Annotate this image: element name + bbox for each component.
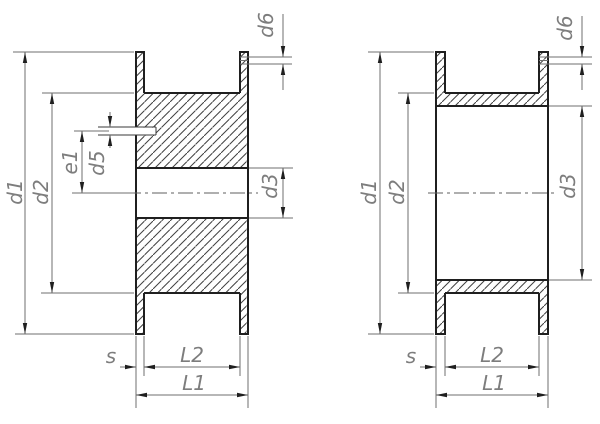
hatch-top-right-flange [240,52,248,93]
label-d6: d6 [254,12,278,37]
arrow-up [108,135,112,146]
arrow-up [378,52,382,63]
hatch-bottom-right-flange [539,293,548,334]
hatch-bottom-right-flange [240,293,248,334]
label-d3: d3 [556,173,580,198]
dimension-d5: d5 [85,112,112,176]
arrow-right [125,365,136,369]
label-d2: d2 [385,179,409,204]
dimension-d3-left: d3 [249,168,293,218]
label-s: s [406,344,416,368]
dimensions-bottom-left: s L2 L1 [106,336,248,408]
dimensions-bottom-right: s L2 L1 [406,336,548,408]
label-d2: d2 [29,179,53,204]
arrow-down [80,182,84,193]
label-d1: d1 [3,179,27,204]
hatch-lower-body [136,218,248,293]
label-L1: L1 [182,371,206,395]
hatch-bottom-left-flange [136,293,144,334]
left-pulley-view: d1 d2 e1 [3,12,293,408]
arrow-down [23,323,27,334]
arrow-right [537,393,548,397]
label-L2: L2 [180,343,204,367]
dimension-d3-right: d3 [549,106,592,280]
arrow-up [50,93,54,104]
label-d3: d3 [258,173,282,198]
arrow-left [136,393,147,397]
arrow-right [229,365,240,369]
arrow-down [281,46,285,57]
label-L1: L1 [482,371,506,395]
drawing-canvas: d1 d2 e1 [0,0,600,424]
hatch-top-left-flange [136,52,144,93]
arrow-down [108,116,112,127]
hatch-bottom-left-flange [436,293,445,334]
dimension-d2-right: d2 [385,93,434,293]
arrow-down [580,46,584,57]
arrow-left [445,365,456,369]
arrow-down [580,269,584,280]
arrow-right [425,365,436,369]
hatch-lower-rim [436,280,548,293]
label-e1: e1 [58,149,82,174]
arrow-up [580,64,584,75]
arrow-up [406,93,410,104]
hatch-top-right-flange [539,52,548,93]
label-d1: d1 [357,179,381,204]
arrow-up [23,52,27,63]
arrow-up [580,106,584,117]
hatch-top-left-flange [436,52,445,93]
dimension-d6-left: d6 [254,12,285,90]
technical-drawing: d1 d2 e1 [0,0,600,424]
label-d5: d5 [85,150,109,175]
arrow-left [144,365,155,369]
right-pulley-view: d1 d2 d3 [357,15,592,408]
setscrew-hole-fill [135,128,156,135]
arrow-down [406,282,410,293]
arrow-down [50,282,54,293]
label-d6: d6 [553,15,577,40]
arrow-right [528,365,539,369]
arrow-left [436,393,447,397]
hatch-upper-rim [436,93,548,106]
arrow-down [378,323,382,334]
arrow-right [237,393,248,397]
label-L2: L2 [480,343,504,367]
dimension-d6-right: d6 [553,15,584,90]
arrow-down [281,207,285,218]
arrow-up [80,131,84,142]
label-s: s [106,344,116,368]
arrow-up [281,64,285,75]
